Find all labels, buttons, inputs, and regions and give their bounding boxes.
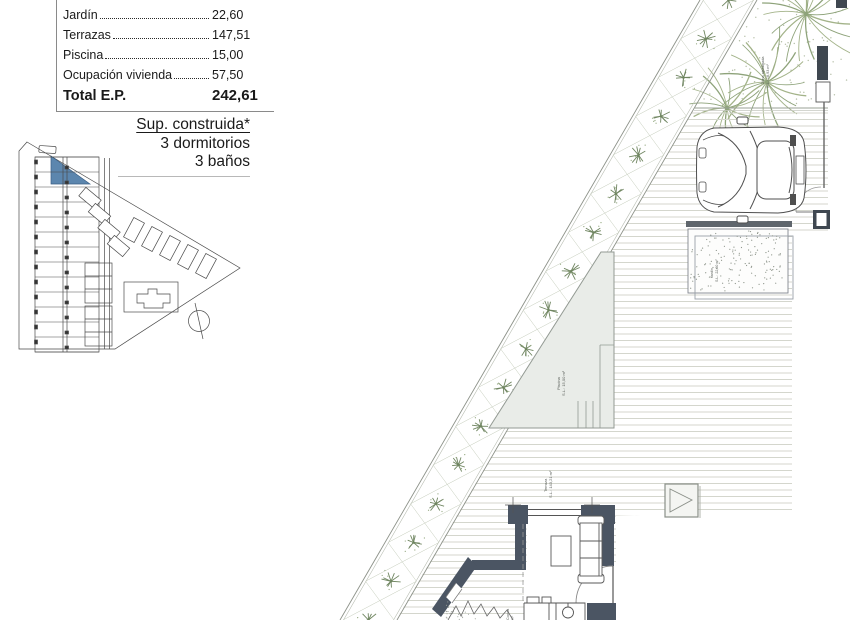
highlighted-unit	[51, 156, 90, 184]
table-row: Ocupación vivienda 57,50	[63, 63, 274, 83]
table-row: Jardín 22,60	[63, 3, 274, 23]
car-mirror	[737, 216, 748, 223]
parked-car	[697, 117, 807, 223]
area-label: Jardín	[63, 8, 98, 23]
table-row: Terrazas 147,51	[63, 23, 274, 43]
corner-gravel	[446, 601, 476, 620]
area-value: 22,60	[212, 8, 274, 23]
coffee-table	[551, 536, 571, 566]
plan-sheet: Jardín S.L.: 22,60 m² Zona ajardinada S.…	[0, 0, 850, 620]
entry-pillar	[816, 82, 830, 102]
site-key-plan	[19, 142, 240, 352]
area-table: Jardín 22,60 Terrazas 147,51 Piscina 15,…	[56, 0, 274, 112]
area-label: Ocupación vivienda	[63, 68, 172, 83]
wall-segment	[836, 0, 847, 8]
bathrooms-text: 3 baños	[108, 153, 250, 172]
area-value: 147,51	[212, 28, 274, 43]
garden-zone-label: Zona ajardinada	[761, 56, 765, 84]
gravel-garden-bed: Jardín S.L.: 22,60 m²	[688, 229, 793, 299]
dotted-leader	[100, 18, 209, 19]
kitchen-sink	[563, 607, 574, 618]
built-surface-title: Sup. construida*	[108, 116, 250, 135]
garden-zone-area-label: S.L.: 18,93 m²	[766, 63, 770, 88]
table-total-row: Total E.P. 242,61	[63, 83, 274, 105]
area-label: Terrazas	[63, 28, 111, 43]
car-mirror	[737, 117, 748, 124]
dotted-leader	[105, 58, 209, 59]
total-label: Total E.P.	[63, 88, 126, 105]
dotted-leader	[174, 78, 209, 79]
utility-box-symbol	[665, 484, 700, 518]
total-value: 242,61	[212, 87, 274, 105]
dotted-leader	[113, 38, 209, 39]
area-label: Piscina	[63, 48, 103, 63]
terrace-area-label: S.L.: 143,21 m²	[548, 470, 553, 498]
house-floorplan: Cocina m²	[432, 497, 616, 620]
swimming-pool: Piscina S.L.: 15,00 m²	[489, 252, 614, 428]
gate-post	[817, 46, 828, 80]
area-value: 57,50	[212, 68, 274, 83]
bedrooms-text: 3 dormitorios	[108, 135, 250, 154]
table-row: Piscina 15,00	[63, 43, 274, 63]
area-value: 15,00	[212, 48, 274, 63]
amenity-building	[137, 289, 170, 308]
sofa	[578, 516, 604, 583]
summary-block: Sup. construida* 3 dormitorios 3 baños	[108, 116, 250, 172]
pool-area-label: S.L.: 15,00 m²	[561, 370, 566, 396]
summary-divider	[118, 176, 250, 177]
gravel-label: Jardín	[710, 268, 714, 278]
car-roof	[757, 141, 794, 199]
gravel-area-label: S.L.: 22,60 m²	[715, 259, 719, 282]
